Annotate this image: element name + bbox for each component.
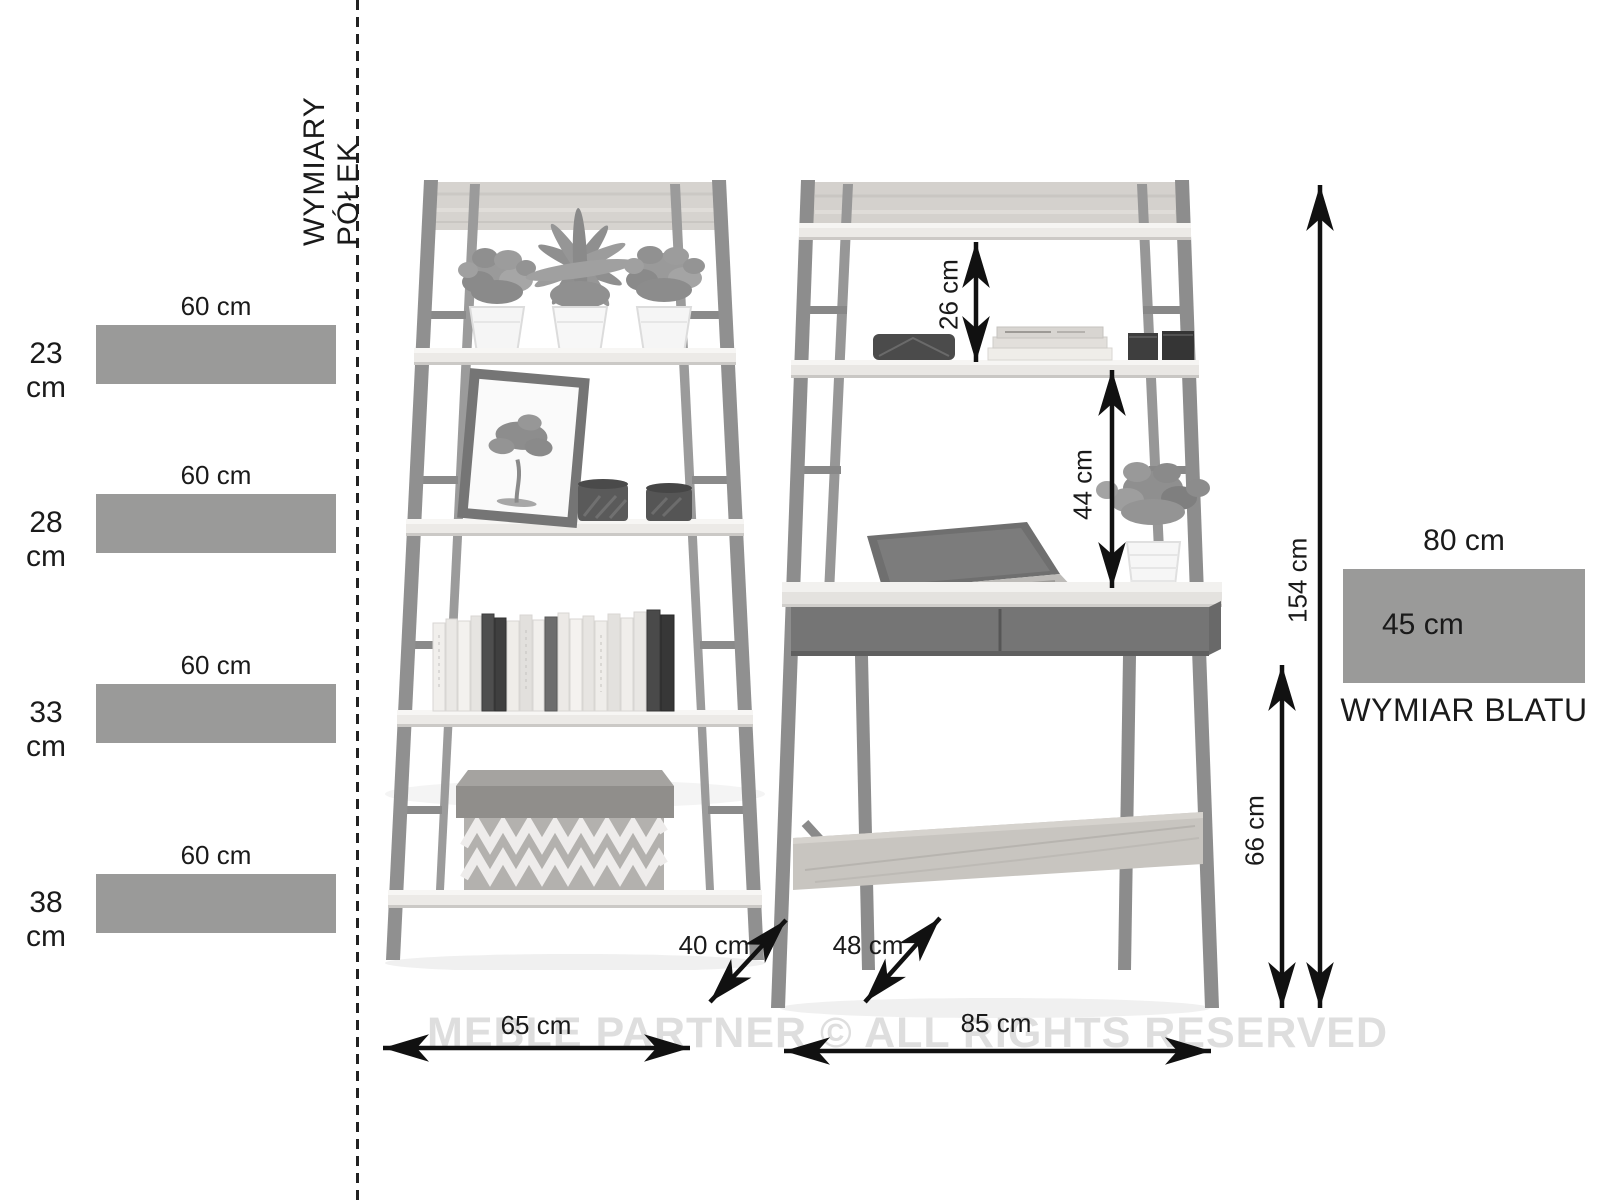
left-panel-title: WYMIARY PÓŁEK xyxy=(310,30,354,246)
worktop-depth-label: 45 cm xyxy=(1382,608,1464,642)
desk-height-label: 154 cm xyxy=(1281,505,1315,655)
shelf4-width-label: 60 cm xyxy=(96,840,336,870)
worktop-clearance-label: 44 cm xyxy=(1066,425,1100,545)
shelf-depth-label: 40 cm xyxy=(668,930,760,960)
worktop-width-label: 80 cm xyxy=(1394,524,1534,558)
shelf2-depth-label: 28 cm xyxy=(12,506,80,574)
shelf2-width-label: 60 cm xyxy=(96,460,336,490)
shelf3-width-label: 60 cm xyxy=(96,650,336,680)
shelf-width-label: 65 cm xyxy=(476,1010,596,1040)
shelf1-width-label: 60 cm xyxy=(96,291,336,321)
hutch-gap-label: 26 cm xyxy=(932,235,966,355)
shelf4-depth-label: 38 cm xyxy=(12,886,80,954)
dimension-arrows xyxy=(0,0,1600,1200)
worktop-height-label: 66 cm xyxy=(1238,768,1272,893)
desk-width-label: 85 cm xyxy=(936,1008,1056,1038)
worktop-caption: WYMIAR BLATU xyxy=(1318,692,1600,729)
shelf3-depth-label: 33 cm xyxy=(12,696,80,764)
dimension-diagram: WYMIARY PÓŁEK 60 cm 23 cm 60 cm 28 cm 60… xyxy=(0,0,1600,1200)
desk-depth-label: 48 cm xyxy=(822,930,914,960)
shelf1-depth-label: 23 cm xyxy=(12,337,80,405)
